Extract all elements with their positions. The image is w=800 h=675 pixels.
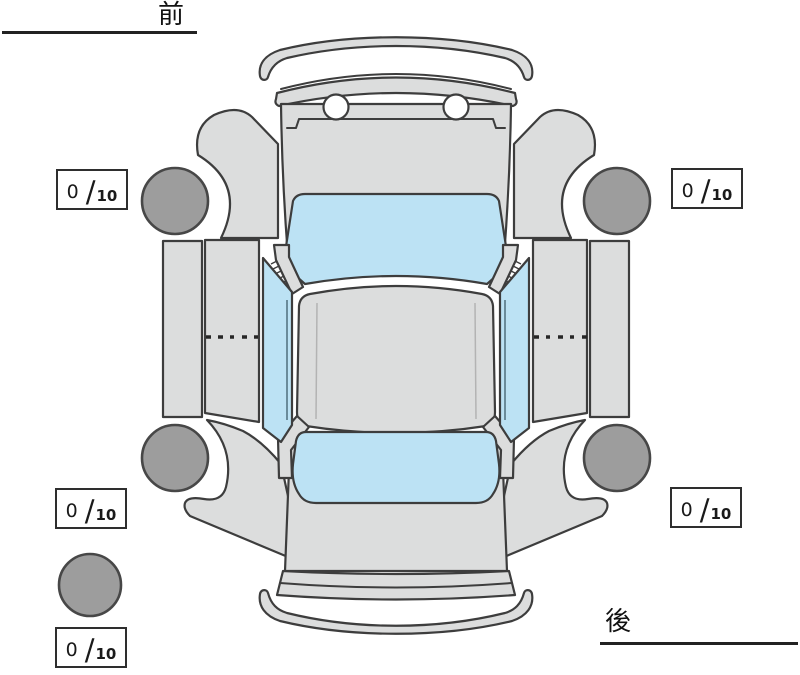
tread-separator: / [701,178,711,205]
tread-value: 0 [682,182,694,201]
tread-max: 10 [97,189,118,204]
rear-window [293,432,500,503]
front-label: 前 [158,2,185,28]
door-right [533,240,587,422]
roof [297,286,495,433]
rocker-panel-left [163,241,202,417]
rocker-panel-right [590,241,629,417]
fender-front-right [514,110,595,238]
fender-front-left [197,110,278,238]
headlight-left-icon [324,95,349,120]
roof-drip-rail-left [316,303,317,419]
tread-separator: / [85,637,95,664]
rear-underline [600,642,798,645]
tread-max: 10 [96,647,117,662]
tire-front-left-icon [142,168,208,234]
tread-max: 10 [711,507,732,522]
tread-value: 0 [66,641,78,660]
tread-separator: / [85,498,95,525]
tread-box-front-right: 0/10 [671,168,743,209]
spare-tire-icon [59,554,121,616]
tread-value: 0 [66,502,78,521]
car-top-view-diagram [0,0,800,675]
tread-box-spare: 0/10 [55,627,127,668]
tire-front-right-icon [584,168,650,234]
tread-separator: / [86,179,96,206]
tread-max: 10 [96,508,117,523]
front-label-text: 前 [158,0,185,30]
tread-value: 0 [67,183,79,202]
tire-rear-left-icon [142,425,208,491]
rear-label: 後 [605,609,632,635]
tread-max: 10 [712,188,733,203]
roof-drip-rail-right [475,303,476,419]
tread-box-rear-left: 0/10 [55,488,127,529]
tire-rear-right-icon [584,425,650,491]
tread-separator: / [700,497,710,524]
tread-box-front-left: 0/10 [56,169,128,210]
rear-label-text: 後 [605,607,632,637]
tread-box-rear-right: 0/10 [670,487,742,528]
front-underline [2,31,197,34]
windshield [284,194,508,284]
tread-value: 0 [681,501,693,520]
headlight-right-icon [444,95,469,120]
door-left [205,240,259,422]
vehicle-condition-diagram: 前 後 0/10 0/10 0/10 0/10 0/10 [0,0,800,675]
